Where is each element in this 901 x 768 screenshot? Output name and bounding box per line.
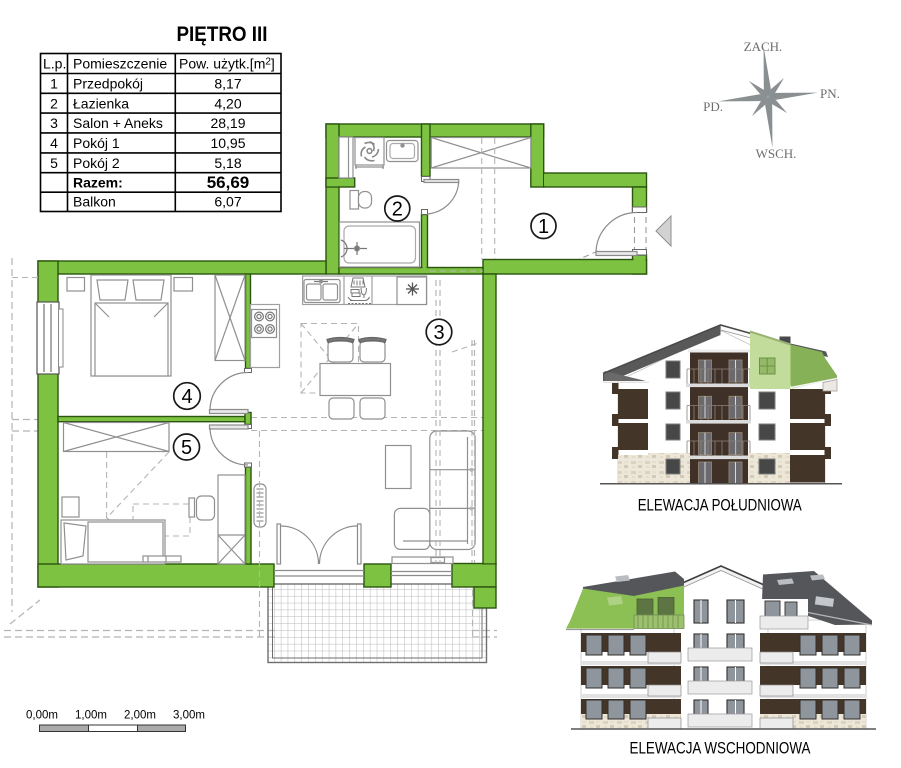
svg-text:4,20: 4,20	[214, 95, 241, 111]
svg-text:ELEWACJA WSCHODNIOWA: ELEWACJA WSCHODNIOWA	[630, 739, 812, 758]
svg-text:5: 5	[50, 155, 58, 171]
svg-text:5,18: 5,18	[214, 155, 241, 171]
svg-text:2: 2	[50, 95, 58, 111]
svg-text:1,00m: 1,00m	[75, 710, 107, 722]
svg-text:3: 3	[50, 115, 58, 131]
svg-text:28,19: 28,19	[210, 115, 245, 131]
svg-text:8,17: 8,17	[214, 76, 241, 92]
svg-text:Salon + Aneks: Salon + Aneks	[73, 115, 163, 131]
svg-text:ZACH.: ZACH.	[744, 39, 783, 54]
svg-text:5: 5	[181, 437, 192, 459]
svg-text:Balkon: Balkon	[73, 194, 116, 210]
svg-text:ELEWACJA POŁUDNIOWA: ELEWACJA POŁUDNIOWA	[638, 496, 803, 515]
svg-text:Pokój 2: Pokój 2	[73, 155, 120, 171]
svg-text:4: 4	[181, 386, 192, 408]
svg-text:PN.: PN.	[820, 86, 840, 101]
svg-text:Przedpokój: Przedpokój	[73, 76, 143, 92]
svg-text:PD.: PD.	[703, 99, 723, 114]
svg-text:4: 4	[50, 135, 58, 151]
svg-text:Razem:: Razem:	[73, 175, 123, 191]
svg-text:2: 2	[392, 199, 403, 221]
svg-text:3,00m: 3,00m	[173, 710, 205, 722]
svg-text:3: 3	[433, 322, 444, 344]
svg-text:56,69: 56,69	[207, 173, 250, 192]
svg-text:WSCH.: WSCH.	[756, 146, 797, 161]
svg-text:Pomieszczenie: Pomieszczenie	[73, 56, 167, 72]
svg-text:10,95: 10,95	[210, 135, 245, 151]
svg-text:Pokój 1: Pokój 1	[73, 135, 120, 151]
svg-text:L.p.: L.p.	[43, 56, 66, 72]
svg-text:6,07: 6,07	[214, 194, 241, 210]
svg-text:Łazienka: Łazienka	[73, 95, 129, 111]
svg-text:2,00m: 2,00m	[124, 710, 156, 722]
svg-text:1: 1	[50, 76, 58, 92]
svg-text:0,00m: 0,00m	[26, 710, 58, 722]
svg-text:Pow. użytk.[m2]: Pow. użytk.[m2]	[179, 56, 275, 72]
svg-text:PIĘTRO III: PIĘTRO III	[177, 23, 268, 46]
svg-text:1: 1	[538, 216, 549, 238]
